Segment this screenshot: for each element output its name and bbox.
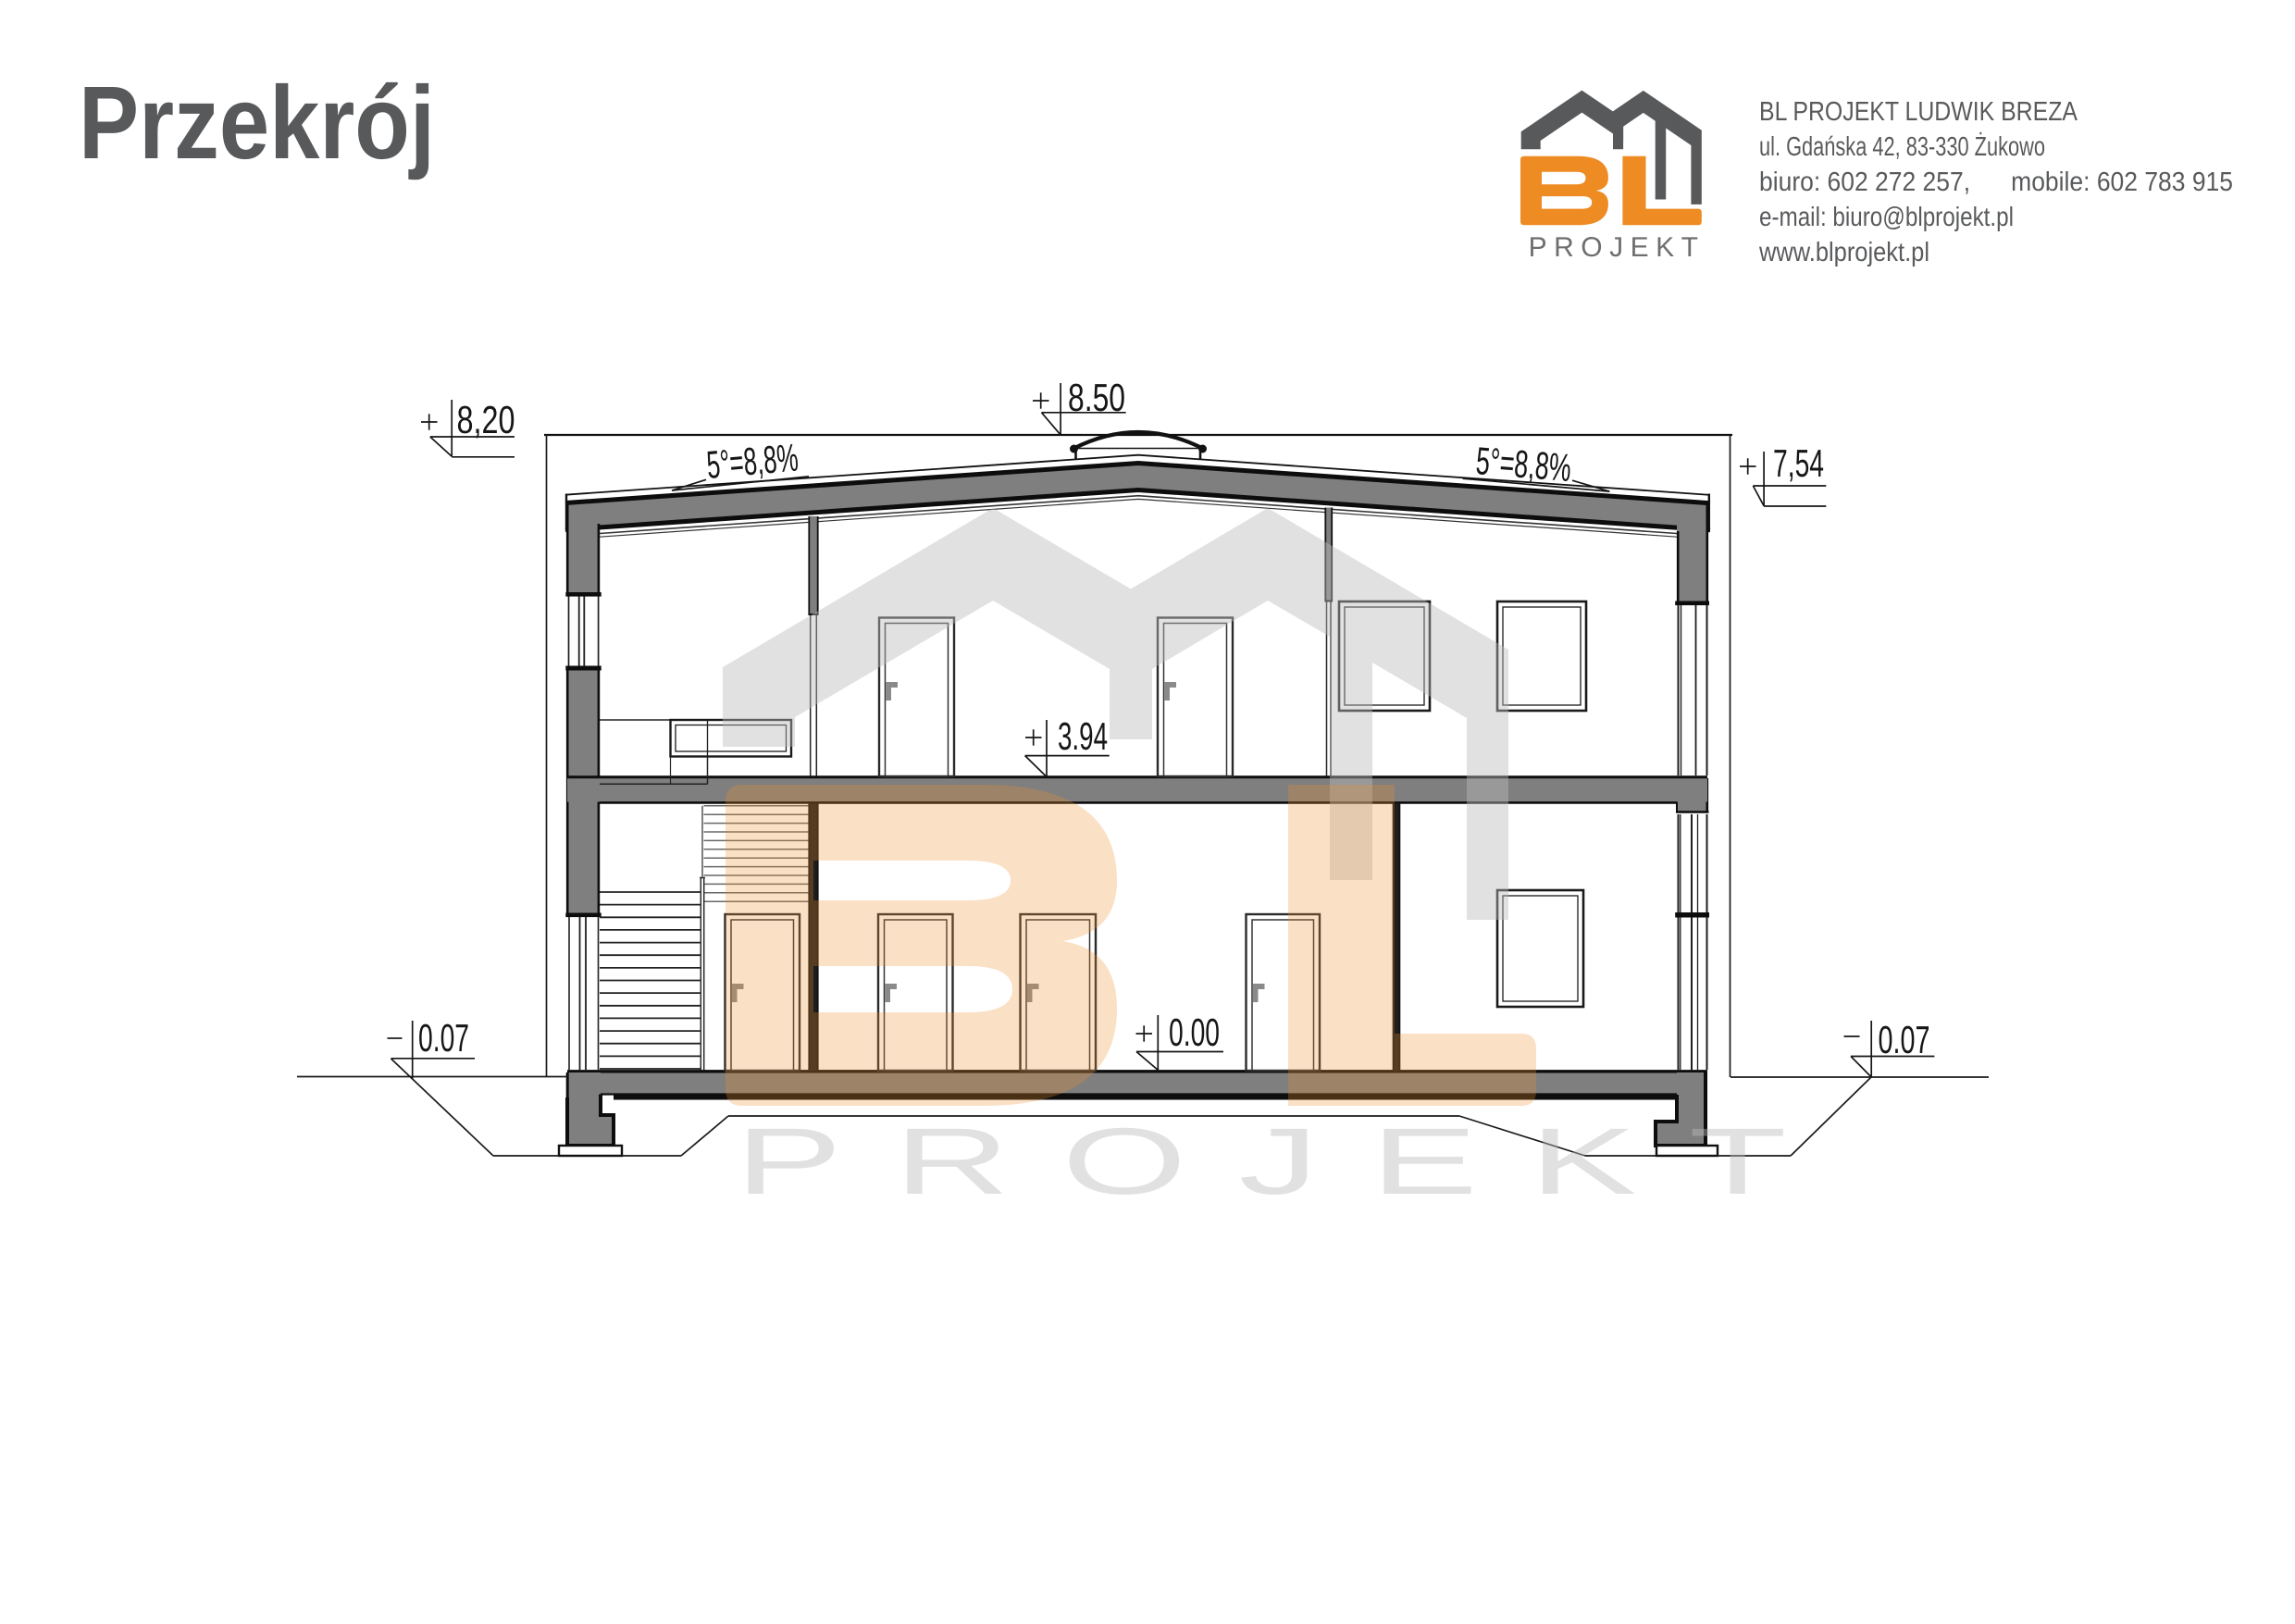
svg-text:0.00: 0.00 — [1169, 1010, 1220, 1054]
svg-text:3.94: 3.94 — [1058, 714, 1108, 758]
svg-text:8.50: 8.50 — [1068, 376, 1125, 419]
svg-text:e-mail: biuro@blprojekt.pl: e-mail: biuro@blprojekt.pl — [1759, 203, 2014, 232]
svg-text:PROJEKT: PROJEKT — [1529, 232, 1706, 263]
svg-text:biuro: 602 272 257, mobil: biuro: 602 272 257, mobile: 602 783 915 — [1759, 167, 2233, 197]
svg-text:Przekrój: Przekrój — [79, 65, 435, 180]
svg-text:0.07: 0.07 — [1879, 1018, 1930, 1061]
svg-text:5°=8,8%: 5°=8,8% — [1474, 439, 1572, 490]
svg-text:www.blprojekt.pl: www.blprojekt.pl — [1758, 238, 1929, 267]
svg-text:8,20: 8,20 — [457, 398, 515, 441]
svg-text:7,54: 7,54 — [1773, 441, 1824, 485]
svg-text:0.07: 0.07 — [418, 1016, 469, 1060]
svg-text:BL PROJEKT LUDWIK BREZA: BL PROJEKT LUDWIK BREZA — [1759, 97, 2078, 127]
svg-text:ul. Gdańska 42, 83-330 Żukowo: ul. Gdańska 42, 83-330 Żukowo — [1759, 131, 2045, 162]
svg-text:PROJEKT: PROJEKT — [735, 1109, 1838, 1214]
